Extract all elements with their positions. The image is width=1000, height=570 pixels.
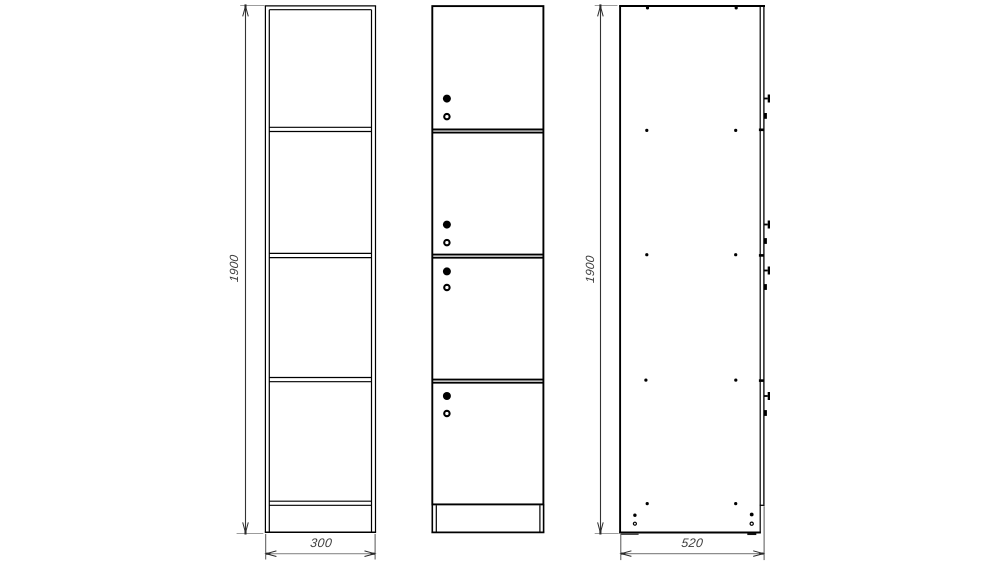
svg-text:520: 520: [681, 536, 704, 550]
svg-text:300: 300: [310, 536, 333, 550]
svg-text:1900: 1900: [227, 254, 241, 283]
svg-text:1900: 1900: [583, 255, 597, 284]
